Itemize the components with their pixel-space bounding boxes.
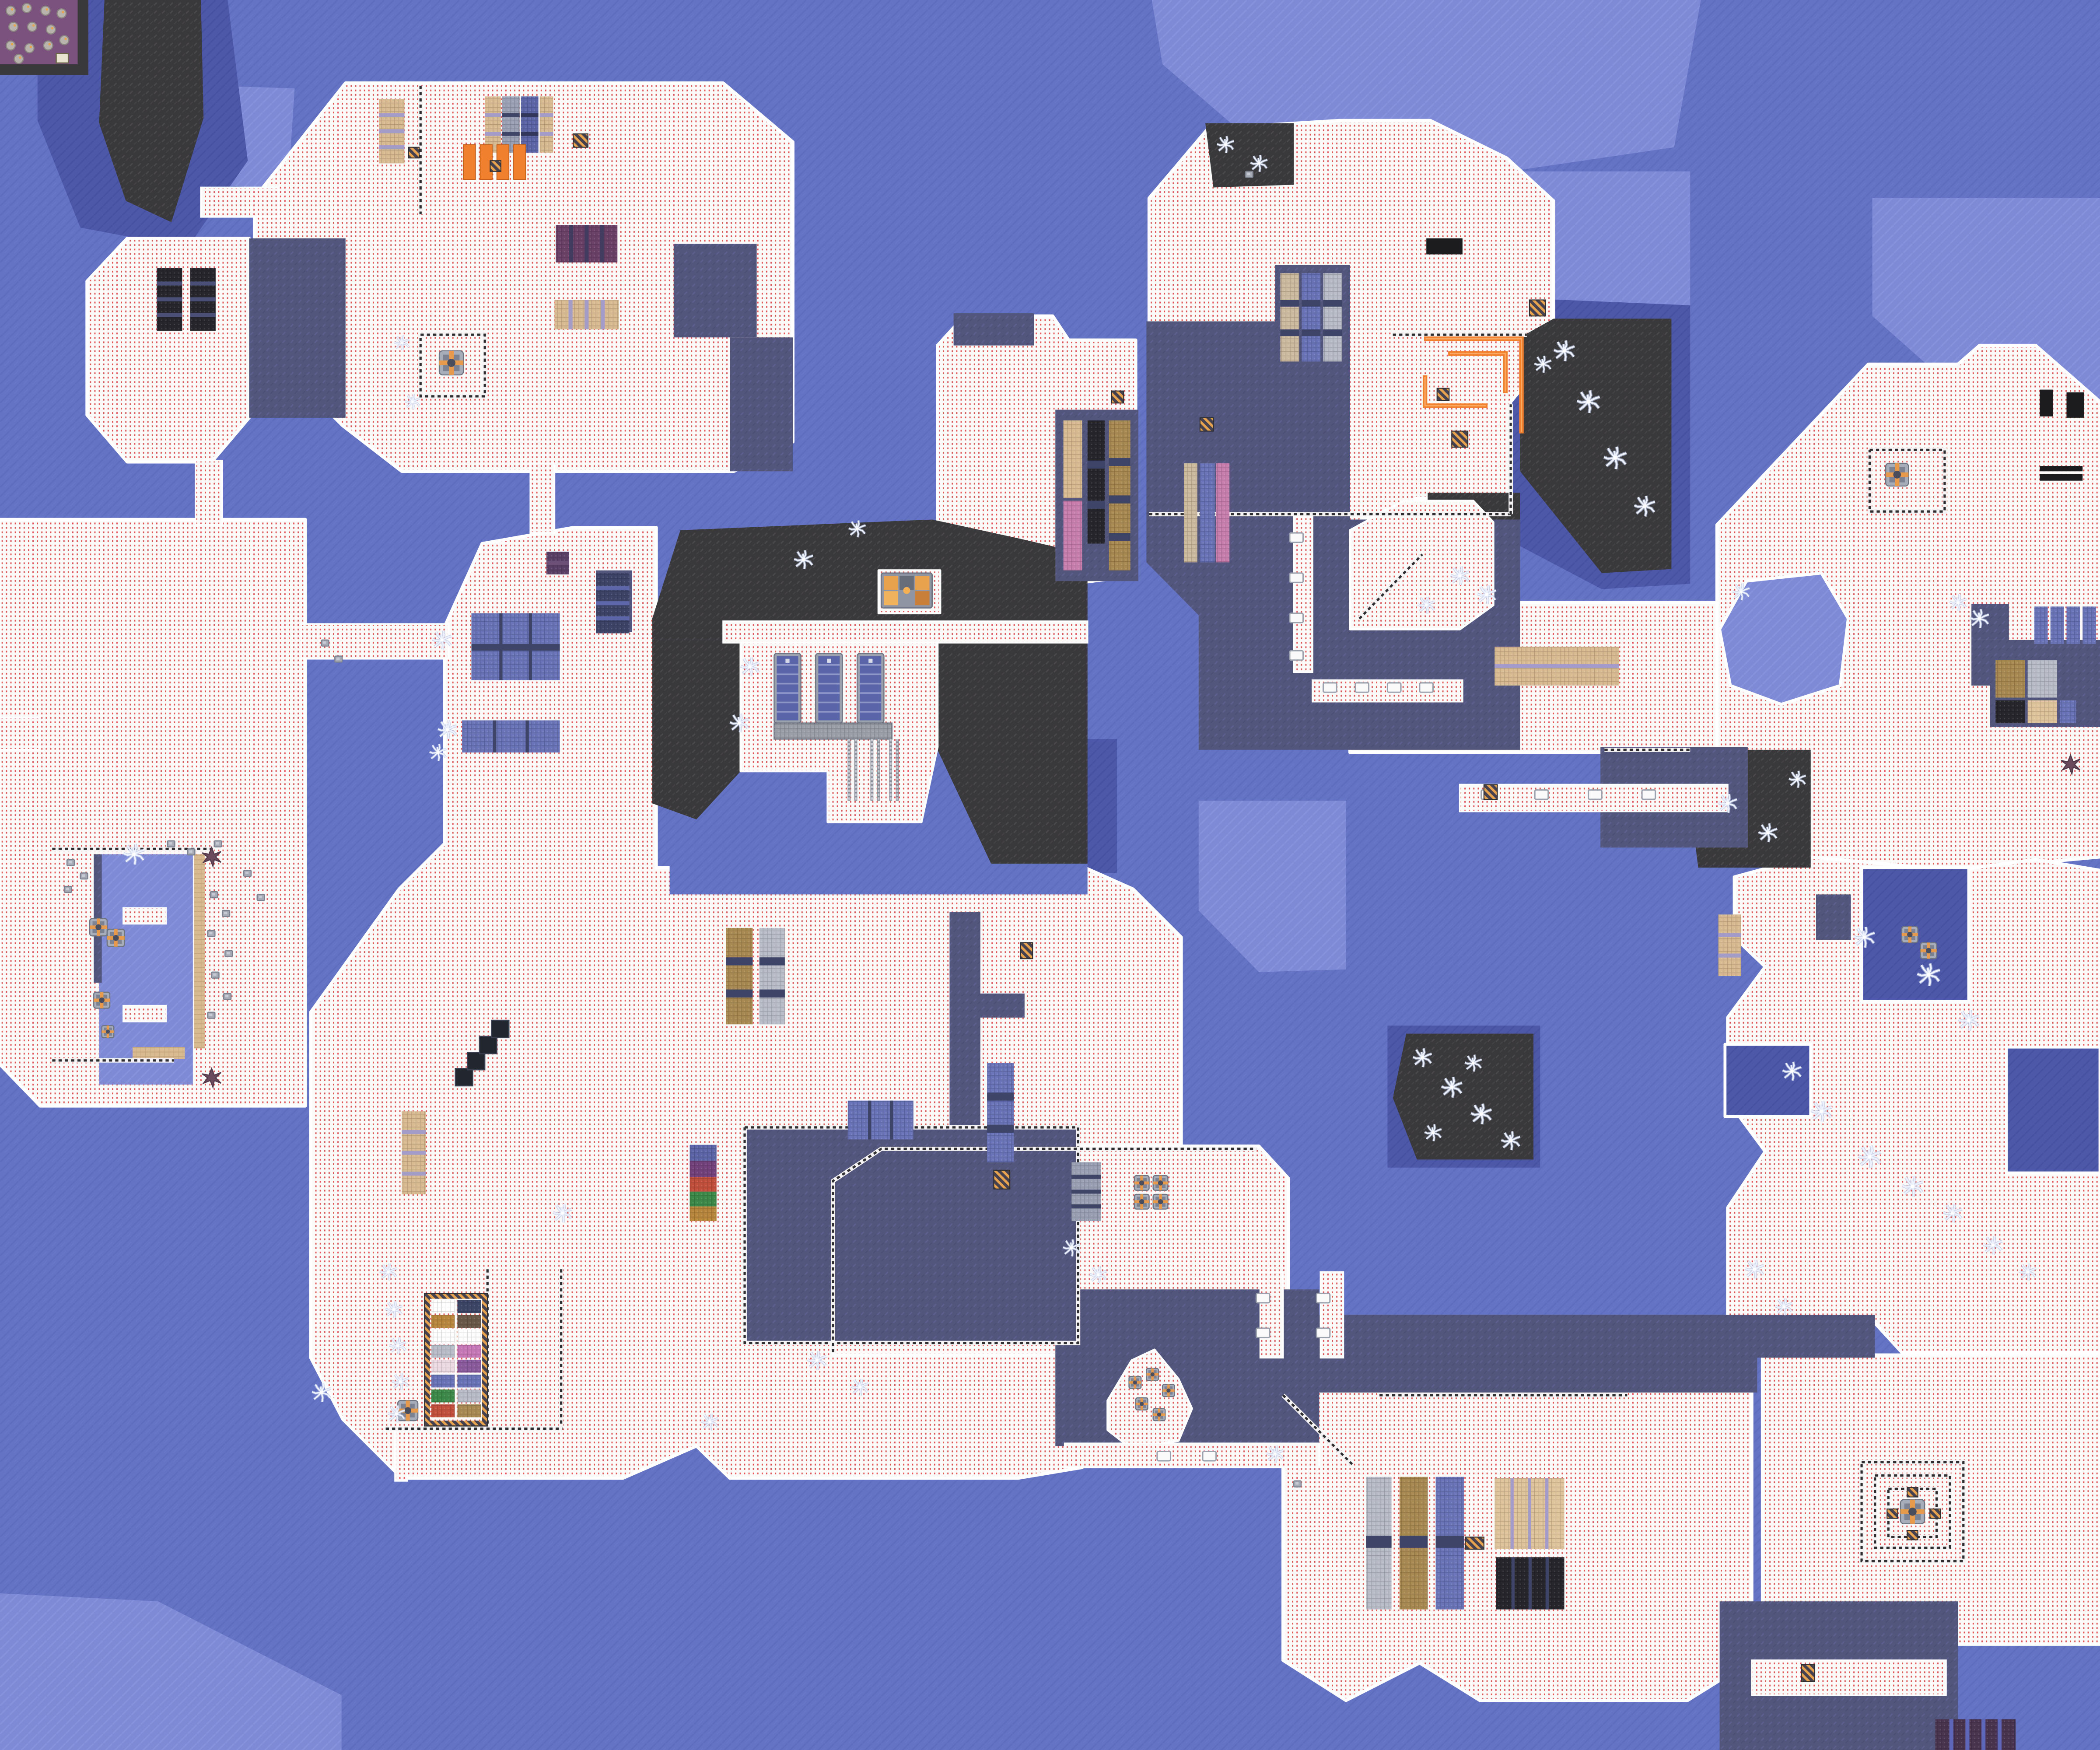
pool-pier <box>123 908 166 924</box>
shelf-rack <box>1494 647 1619 686</box>
shelf-rack <box>1071 1162 1101 1221</box>
pier-post <box>1323 683 1337 692</box>
pier-post <box>1420 683 1433 692</box>
teleporter-pad[interactable] <box>1129 1376 1141 1389</box>
stair-step <box>479 1036 497 1054</box>
hazard-pad <box>1801 1664 1815 1682</box>
snow-bridge <box>196 461 222 525</box>
resource-pile <box>1400 1477 1428 1610</box>
lake <box>1725 1044 1811 1116</box>
hazard-pad <box>1907 1530 1918 1540</box>
teleporter-pad[interactable] <box>1153 1194 1168 1209</box>
slate-ground <box>249 238 345 418</box>
resource-pile <box>1281 273 1299 361</box>
shelf-rack <box>596 573 630 633</box>
teleporter-pad[interactable] <box>439 351 463 375</box>
hazard-pad <box>573 134 588 147</box>
teleporter-pad[interactable] <box>1900 1500 1925 1524</box>
stair-step <box>491 1020 509 1038</box>
black-panel <box>2040 390 2053 416</box>
teleporter-pad[interactable] <box>1134 1176 1149 1190</box>
resource-pile <box>2082 606 2096 644</box>
resource-pile <box>2066 606 2080 644</box>
snow-bridge <box>395 1428 407 1480</box>
resource-pile <box>2034 606 2048 644</box>
resource-pile <box>1323 273 1342 361</box>
resource-pile <box>1200 463 1215 562</box>
pier-post <box>1157 1452 1171 1461</box>
resource-pile <box>462 721 560 752</box>
pier-post <box>1589 790 1602 799</box>
storage-depot[interactable] <box>424 1293 487 1426</box>
teleporter-pad[interactable] <box>1162 1384 1175 1396</box>
pier-post <box>1642 790 1655 799</box>
teleporter-pad[interactable] <box>107 929 125 947</box>
pier-post <box>1290 613 1303 623</box>
resource-pile <box>848 1101 913 1140</box>
hazard-pad <box>1465 1537 1484 1549</box>
resource-pile <box>1064 420 1082 498</box>
resource-pile <box>1216 463 1230 562</box>
hazard-pad <box>1930 1509 1940 1518</box>
hazard-pad <box>1887 1509 1897 1518</box>
slate-ground <box>745 1127 1078 1343</box>
snow-bridge <box>723 621 1088 643</box>
black-panel <box>2040 466 2082 471</box>
hazard-pad <box>490 161 500 171</box>
pier-post <box>1290 651 1303 660</box>
teleporter-pad[interactable] <box>1146 1368 1158 1381</box>
shelf-rack <box>1718 914 1741 976</box>
generator-machine[interactable] <box>815 653 842 723</box>
teleporter-pad[interactable] <box>1921 943 1937 959</box>
resource-pile <box>1436 1477 1464 1610</box>
teleporter-pad[interactable] <box>1136 1398 1148 1410</box>
snow-bridge <box>0 717 40 749</box>
teleporter-pad[interactable] <box>1153 1409 1165 1421</box>
shelf-rack <box>556 225 617 262</box>
resource-pile <box>1995 700 2025 723</box>
stair-step <box>455 1068 473 1086</box>
shelf-rack <box>402 1111 426 1194</box>
pool-pier <box>123 1005 166 1022</box>
resource-pile <box>2051 606 2064 644</box>
shelf-rack <box>190 268 216 331</box>
forge-machine[interactable] <box>881 573 932 608</box>
teleporter-pad[interactable] <box>1153 1176 1168 1190</box>
black-panel <box>2040 474 2082 480</box>
snow-bridge <box>1320 1272 1343 1358</box>
hazard-pad <box>1200 418 1214 431</box>
pier-post <box>1256 1293 1270 1302</box>
resource-pile <box>1109 420 1130 570</box>
slate-ground <box>730 337 793 471</box>
lake <box>2006 1047 2100 1173</box>
slate-ground <box>1725 1315 1875 1358</box>
black-panel <box>1426 238 1463 255</box>
ore-deposit-room <box>0 0 88 75</box>
shelf-rack <box>540 96 553 153</box>
shelf-rack <box>1935 1719 2016 1750</box>
resource-pile <box>1995 660 2025 698</box>
pier-post <box>1290 573 1303 582</box>
hazard-pad <box>994 1170 1010 1189</box>
snow-bridge <box>530 463 554 533</box>
teleporter-pad[interactable] <box>94 992 110 1008</box>
black-panel <box>2066 392 2084 418</box>
teleporter-pad[interactable] <box>102 1025 114 1038</box>
hazard-pad <box>1452 431 1468 447</box>
pier-post <box>1256 1328 1270 1337</box>
pier-post <box>1290 533 1303 542</box>
resource-pile <box>2028 700 2057 723</box>
generator-machine[interactable] <box>774 653 801 723</box>
storage-column <box>690 1145 717 1221</box>
teleporter-pad[interactable] <box>1134 1194 1149 1209</box>
game-map-canvas[interactable] <box>0 0 2100 1750</box>
resource-pile <box>1064 501 1082 570</box>
shelf-rack <box>546 552 569 574</box>
hazard-pad <box>409 147 419 158</box>
generator-machine[interactable] <box>857 653 884 723</box>
snow-bridge <box>1260 1272 1283 1358</box>
shelf-rack <box>157 268 182 331</box>
orange-locker <box>514 145 526 180</box>
pier-post <box>1316 1328 1330 1337</box>
hazard-pad <box>1437 388 1449 401</box>
teleporter-pad[interactable] <box>1902 927 1918 943</box>
resource-pile <box>2060 700 2076 723</box>
hazard-pad <box>1907 1487 1918 1497</box>
resource-pile <box>1366 1477 1391 1610</box>
slate-ground <box>954 313 1034 345</box>
pier-post <box>1316 1293 1330 1302</box>
resource-pile <box>1494 1478 1564 1549</box>
teleporter-pad[interactable] <box>90 918 107 936</box>
orange-locker <box>463 145 476 180</box>
resource-pile <box>2028 660 2057 698</box>
resource-pile <box>472 613 560 680</box>
slate-ground <box>1272 1315 1757 1393</box>
harbor-pool <box>94 854 205 1085</box>
slate-ground <box>1816 894 1851 940</box>
pier-post <box>1355 683 1369 692</box>
hazard-pad <box>1021 943 1033 959</box>
resource-pile <box>987 1063 1014 1162</box>
teleporter-pad[interactable] <box>1886 463 1908 486</box>
snow-bridge <box>201 187 279 217</box>
resource-pile <box>1088 420 1105 544</box>
hazard-pad <box>1112 391 1124 403</box>
game-viewport[interactable] <box>0 0 2100 1750</box>
pier-post <box>1203 1452 1216 1461</box>
resource-pile <box>726 928 752 1024</box>
slate-ground <box>674 244 757 337</box>
snow-bridge <box>1752 1660 1946 1695</box>
snow-island <box>1763 1355 2100 1644</box>
pier-post <box>1535 790 1548 799</box>
resource-pile <box>1302 273 1321 361</box>
hazard-pad <box>1529 300 1546 316</box>
resource-pile <box>1496 1557 1564 1609</box>
shelf-rack <box>379 99 404 163</box>
resource-pile <box>759 928 785 1024</box>
hazard-pad <box>1484 784 1498 799</box>
pier-post <box>1387 683 1401 692</box>
stair-step <box>467 1053 485 1070</box>
shelf-rack <box>554 300 619 329</box>
resource-pile <box>1184 463 1197 562</box>
